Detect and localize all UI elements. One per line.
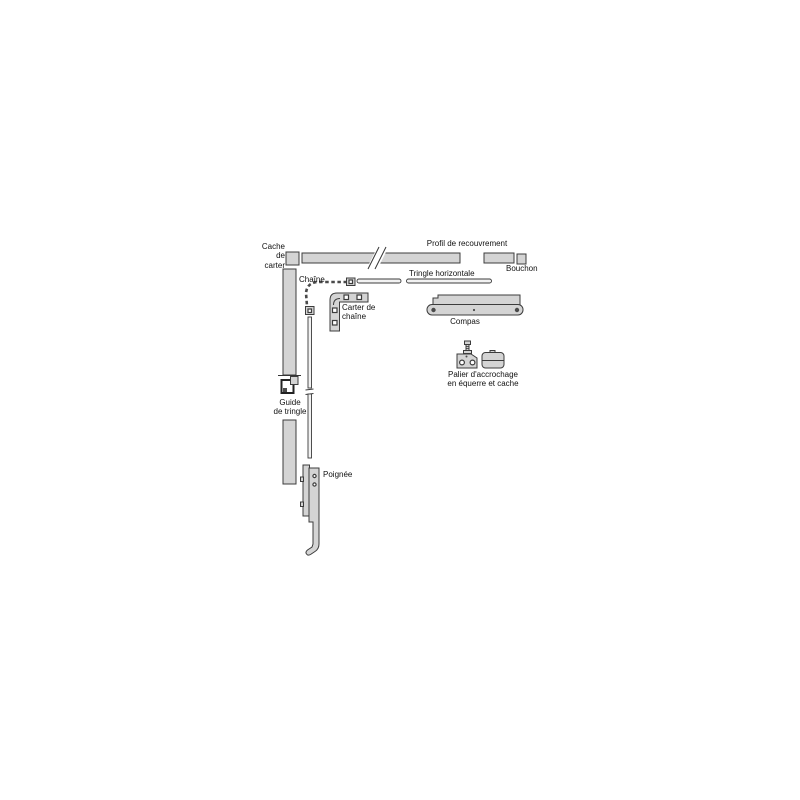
part-tringle-horizontale <box>357 279 492 283</box>
part-tringle-verticale <box>306 317 314 458</box>
label-palier-accrochage: Palier d'accrochage en équerre et cache <box>447 370 519 389</box>
label-cache-de-carter: Cache de carter <box>254 242 285 270</box>
part-poignee <box>301 465 320 555</box>
part-guide-de-tringle <box>282 377 299 394</box>
part-palier-accrochage <box>457 341 504 368</box>
label-profil-de-recouvrement: Profil de recouvrement <box>417 239 517 248</box>
parts-diagram: Cache de carter Profil de recouvrement B… <box>0 0 800 800</box>
part-compas <box>427 295 523 315</box>
part-profil-de-recouvrement <box>302 246 514 270</box>
label-poignee: Poignée <box>323 470 363 479</box>
label-bouchon: Bouchon <box>506 264 546 273</box>
part-bouchon <box>517 254 526 264</box>
label-tringle-horizontale: Tringle horizontale <box>409 269 489 278</box>
label-carter-de-chaine: Carter de chaîne <box>342 303 382 322</box>
profil-end-piece <box>484 253 514 263</box>
label-compas: Compas <box>445 317 485 326</box>
diagram-canvas <box>0 0 800 800</box>
part-cache-de-carter <box>286 252 299 265</box>
label-guide-de-tringle: Guide de tringle <box>270 398 310 417</box>
label-chaine: Chaîne <box>299 275 331 284</box>
